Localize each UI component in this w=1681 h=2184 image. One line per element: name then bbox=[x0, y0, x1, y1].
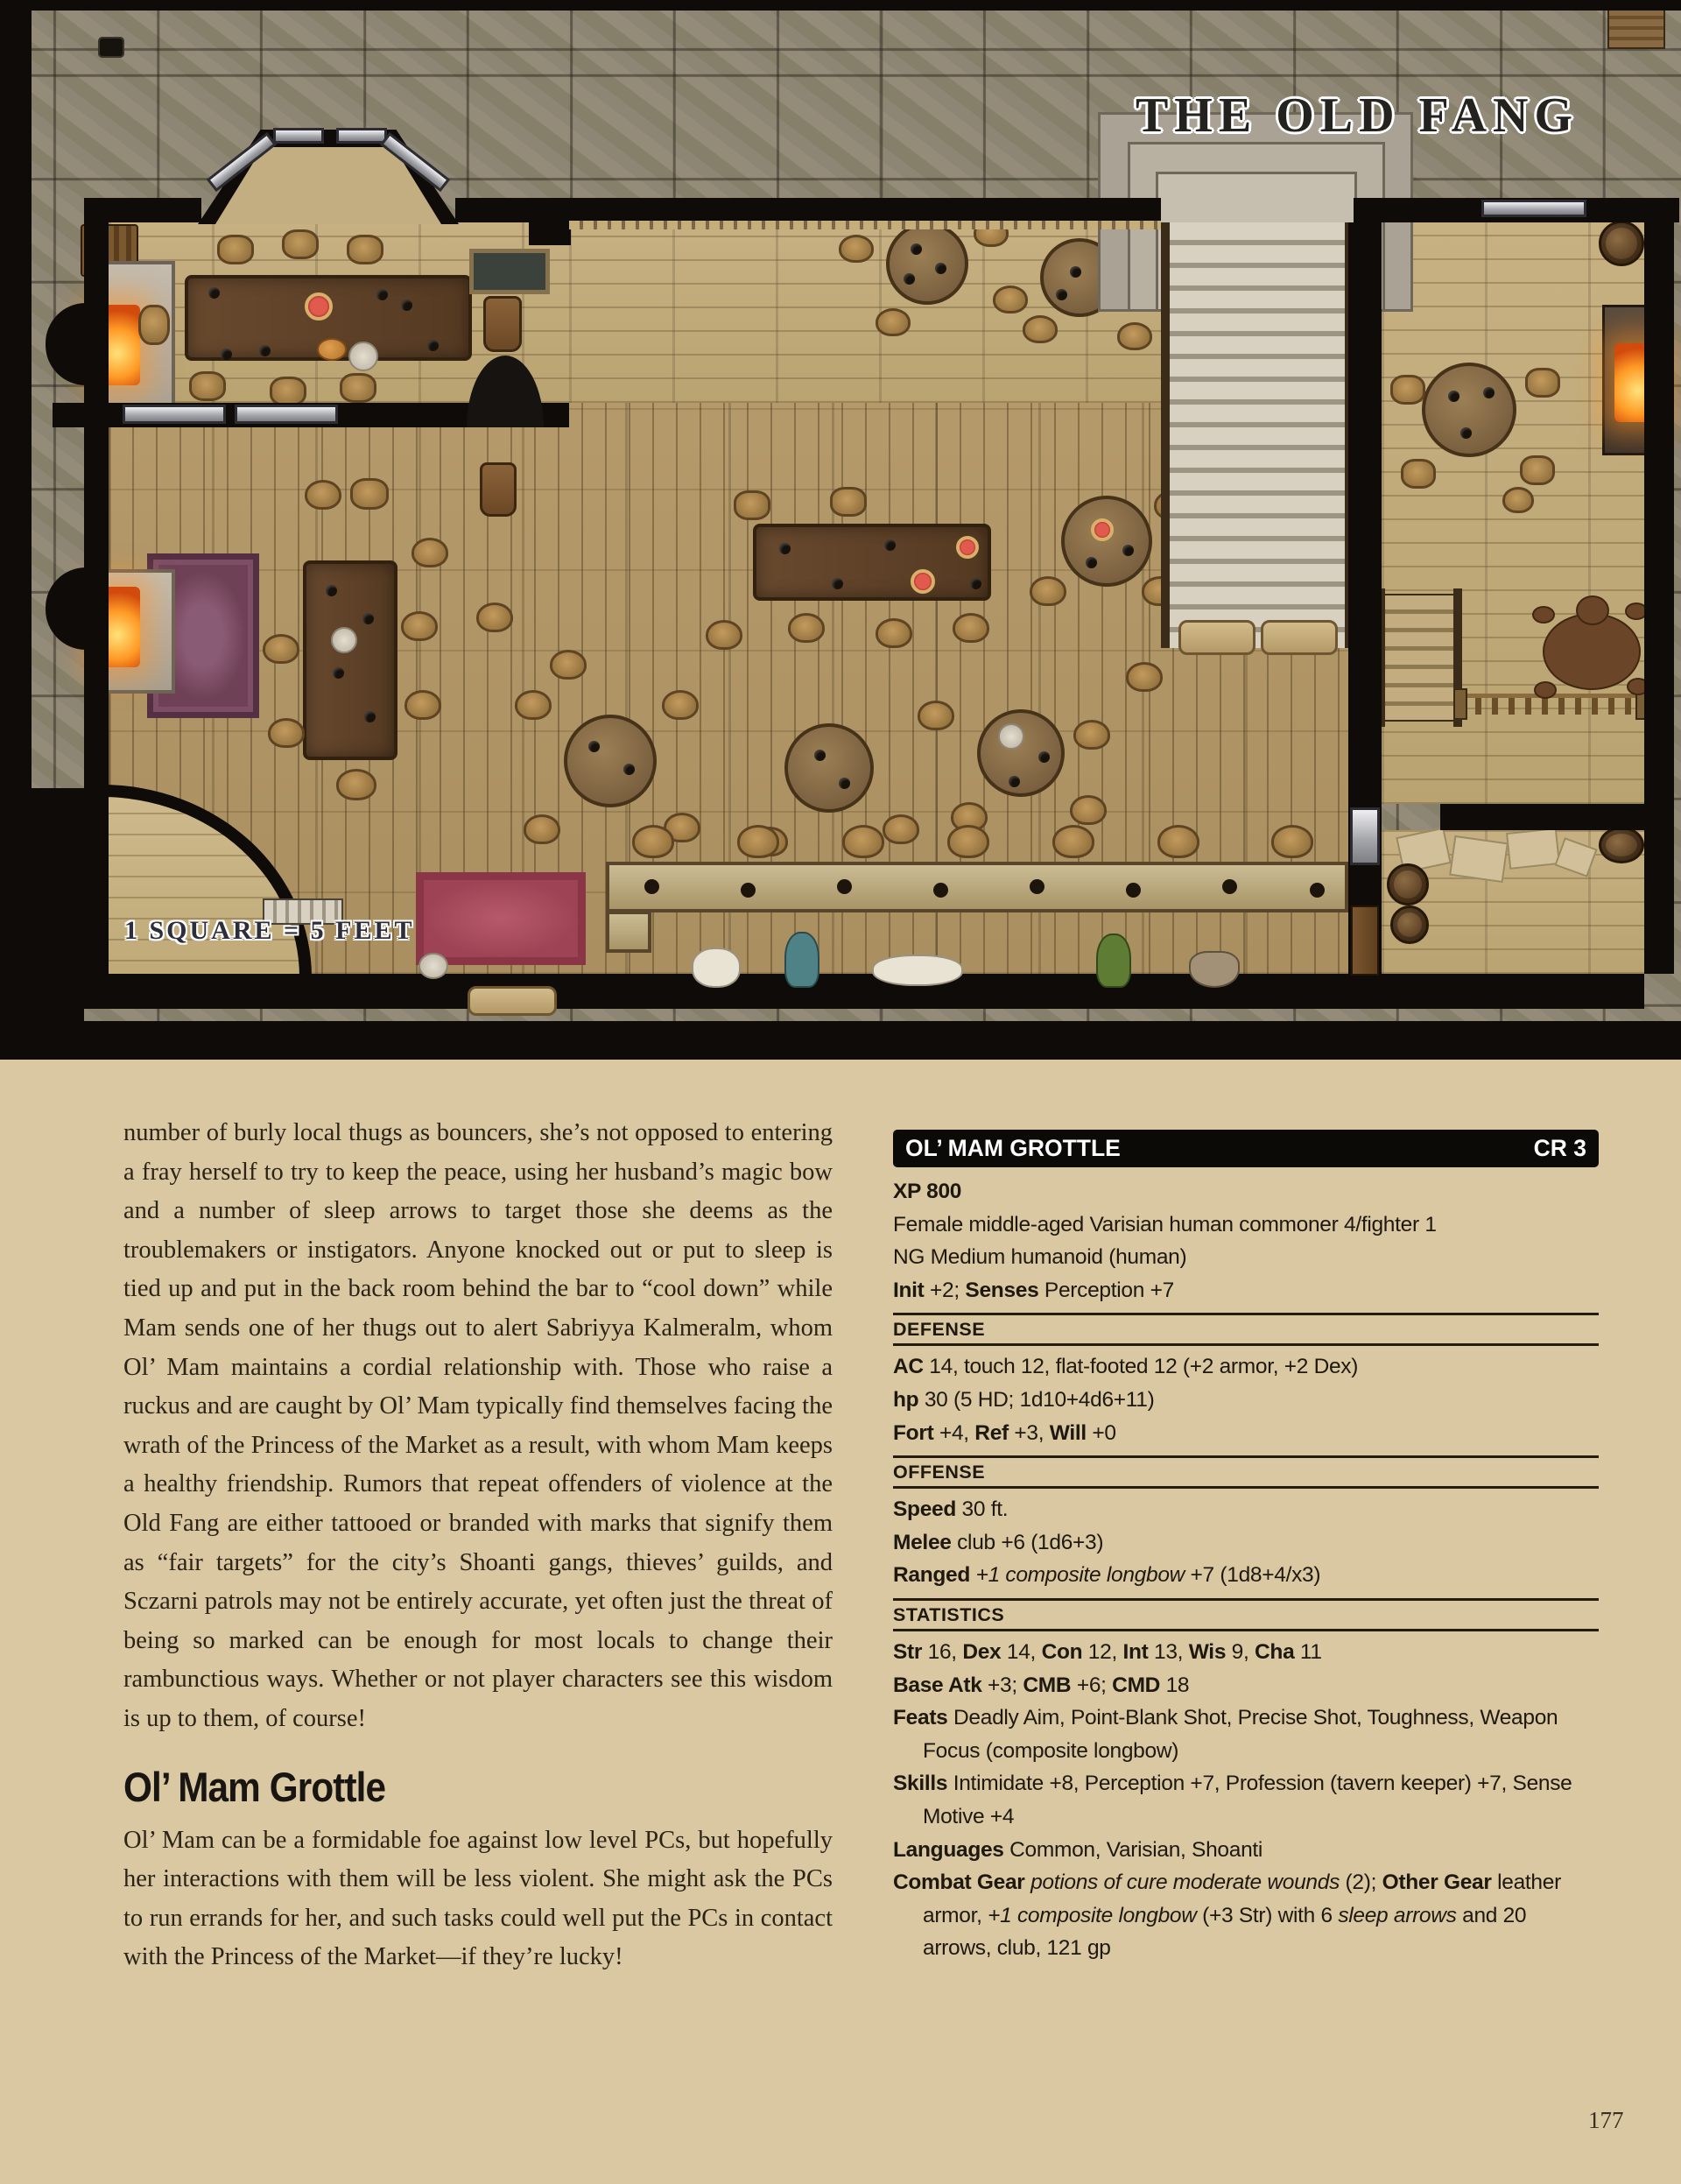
stat-line: Skills Intimidate +8, Perception +7, Pro… bbox=[893, 1767, 1599, 1833]
mug bbox=[208, 287, 220, 299]
bolt bbox=[1030, 879, 1044, 894]
paper-sack bbox=[1506, 828, 1560, 870]
chair bbox=[282, 229, 319, 259]
mug bbox=[1009, 776, 1020, 787]
stat-intro: XP 800Female middle-aged Varisian human … bbox=[893, 1175, 1599, 1307]
stool bbox=[706, 620, 742, 650]
chair bbox=[217, 235, 254, 264]
round-table bbox=[1422, 363, 1516, 457]
chair bbox=[189, 371, 226, 401]
dining-table bbox=[303, 560, 397, 760]
bear-paw bbox=[1532, 606, 1555, 623]
stat-line: Str 16, Dex 14, Con 12, Int 13, Wis 9, C… bbox=[893, 1636, 1599, 1669]
mug bbox=[623, 764, 635, 775]
stat-block-header: OL’ MAM GROTTLE CR 3 bbox=[893, 1130, 1599, 1167]
stat-block-name: OL’ MAM GROTTLE bbox=[905, 1135, 1121, 1162]
stool bbox=[788, 613, 825, 643]
door bbox=[1351, 905, 1379, 976]
stat-line: Base Atk +3; CMB +6; CMD 18 bbox=[893, 1669, 1599, 1702]
wall bbox=[84, 974, 1644, 1009]
chair bbox=[347, 235, 383, 264]
stat-line: Speed 30 ft. bbox=[893, 1493, 1599, 1526]
stool bbox=[918, 701, 954, 730]
barrel bbox=[1599, 221, 1644, 266]
mug bbox=[427, 340, 439, 351]
stool bbox=[1023, 315, 1058, 343]
map-frame bbox=[0, 0, 1681, 11]
chair bbox=[1525, 368, 1560, 398]
stool bbox=[336, 769, 376, 800]
stat-line: hp 30 (5 HD; 1d10+4d6+11) bbox=[893, 1384, 1599, 1417]
stool bbox=[883, 814, 919, 844]
bolt bbox=[1222, 879, 1237, 894]
chair bbox=[350, 478, 389, 510]
bench bbox=[1261, 620, 1338, 655]
chair bbox=[270, 377, 306, 406]
stool bbox=[550, 650, 587, 680]
staircase bbox=[1383, 594, 1455, 722]
window bbox=[1481, 200, 1586, 217]
wall bbox=[1440, 804, 1672, 830]
dining-table bbox=[753, 524, 991, 601]
stool bbox=[953, 613, 989, 643]
stool bbox=[515, 690, 552, 720]
armchair bbox=[483, 296, 522, 352]
bar-stool bbox=[1052, 825, 1094, 858]
bench bbox=[1178, 620, 1255, 655]
bar-stool bbox=[632, 825, 674, 858]
stool bbox=[263, 634, 299, 664]
bar-counter bbox=[606, 911, 651, 953]
fish-trophy bbox=[1096, 933, 1131, 988]
stat-block: OL’ MAM GROTTLE CR 3 XP 800Female middle… bbox=[893, 1130, 1599, 1965]
bolt bbox=[644, 879, 659, 894]
stool bbox=[876, 308, 911, 336]
chimney bbox=[46, 303, 86, 385]
bar-stool bbox=[947, 825, 989, 858]
stat-line: Init +2; Senses Perception +7 bbox=[893, 1274, 1599, 1307]
stool bbox=[1030, 576, 1066, 606]
chair bbox=[1401, 459, 1436, 489]
bar-stool bbox=[1271, 825, 1313, 858]
fish-trophy bbox=[784, 932, 819, 988]
round-table bbox=[886, 222, 968, 305]
drain-grate bbox=[98, 37, 124, 58]
plate bbox=[956, 536, 979, 559]
barrel bbox=[1387, 863, 1429, 905]
map-title: THE OLD FANG bbox=[1112, 89, 1602, 144]
mug bbox=[1038, 751, 1050, 763]
bar-stool bbox=[842, 825, 884, 858]
stat-section-header: OFFENSE bbox=[893, 1455, 1599, 1489]
barrel bbox=[1599, 827, 1644, 863]
stool bbox=[404, 690, 441, 720]
plate bbox=[331, 627, 357, 653]
stool bbox=[876, 618, 912, 648]
chair bbox=[1520, 455, 1555, 485]
menu-sign bbox=[469, 249, 550, 294]
chimney bbox=[46, 567, 86, 650]
stat-line: Female middle-aged Varisian human common… bbox=[893, 1208, 1599, 1242]
window bbox=[235, 405, 338, 424]
mug bbox=[1122, 545, 1134, 556]
mug bbox=[1086, 557, 1097, 568]
round-table bbox=[1061, 496, 1152, 587]
dentil-trim bbox=[569, 221, 1161, 229]
stool bbox=[839, 235, 874, 263]
stool bbox=[411, 538, 448, 567]
chair bbox=[734, 490, 770, 520]
stool bbox=[476, 602, 513, 632]
stool bbox=[1070, 795, 1107, 825]
bolt bbox=[837, 879, 852, 894]
stool bbox=[305, 480, 341, 510]
shelf bbox=[468, 986, 557, 1016]
bolt bbox=[1310, 883, 1325, 898]
mug bbox=[970, 578, 981, 589]
chair bbox=[340, 373, 376, 403]
bolt bbox=[1126, 883, 1141, 898]
mug bbox=[1483, 387, 1495, 398]
mug bbox=[376, 289, 388, 300]
window bbox=[1350, 807, 1380, 865]
bar-stool bbox=[737, 825, 779, 858]
stat-block-cr: CR 3 bbox=[1534, 1135, 1586, 1162]
stat-line: Languages Common, Varisian, Shoanti bbox=[893, 1834, 1599, 1867]
window bbox=[336, 128, 387, 144]
stool bbox=[524, 814, 560, 844]
paper-sack bbox=[1449, 835, 1509, 883]
wall bbox=[84, 198, 109, 1000]
plate bbox=[1091, 518, 1114, 541]
mug bbox=[401, 299, 412, 311]
stool bbox=[1126, 662, 1163, 692]
mug bbox=[362, 613, 374, 624]
map-frame bbox=[0, 1021, 1681, 1060]
bar-stool bbox=[1157, 825, 1199, 858]
stool bbox=[662, 690, 699, 720]
body-paragraph: Ol’ Mam can be a formidable foe against … bbox=[123, 1821, 833, 1977]
mug bbox=[779, 543, 791, 554]
stat-line: Feats Deadly Aim, Point-Blank Shot, Prec… bbox=[893, 1701, 1599, 1767]
mug bbox=[588, 741, 600, 752]
chair bbox=[830, 487, 867, 517]
stat-line: XP 800 bbox=[893, 1175, 1599, 1208]
stool bbox=[1117, 322, 1152, 350]
bolt bbox=[933, 883, 948, 898]
staircase bbox=[1164, 222, 1350, 648]
plate bbox=[348, 342, 378, 371]
stat-line: Melee club +6 (1d6+3) bbox=[893, 1526, 1599, 1560]
section-heading: Ol’ Mam Grottle bbox=[123, 1763, 762, 1811]
round-table bbox=[784, 723, 874, 813]
bolt bbox=[741, 883, 756, 898]
window bbox=[273, 128, 324, 144]
stat-line: Fort +4, Ref +3, Will +0 bbox=[893, 1417, 1599, 1450]
wall-post bbox=[529, 198, 571, 245]
armchair bbox=[480, 462, 517, 517]
map-scale-label: 1 SQUARE = 5 FEET bbox=[124, 918, 414, 944]
herb-plate bbox=[418, 953, 448, 979]
mug bbox=[1448, 391, 1459, 402]
red-rug bbox=[416, 872, 586, 965]
map-frame bbox=[0, 788, 84, 1060]
mug bbox=[935, 263, 946, 274]
stat-sections: DEFENSEAC 14, touch 12, flat-footed 12 (… bbox=[893, 1313, 1599, 1965]
newel-post bbox=[1453, 688, 1467, 720]
wall bbox=[1644, 222, 1674, 974]
stool bbox=[1502, 487, 1534, 513]
mug bbox=[1070, 266, 1081, 278]
mug bbox=[832, 578, 843, 589]
mug bbox=[904, 273, 915, 285]
mug bbox=[911, 243, 922, 255]
wall bbox=[569, 198, 1161, 222]
mug bbox=[1460, 427, 1472, 439]
rail-side bbox=[1161, 222, 1170, 648]
mug bbox=[1056, 289, 1067, 300]
left-column: number of burly local thugs as bouncers,… bbox=[123, 1114, 833, 1977]
mug bbox=[839, 778, 850, 789]
plate bbox=[305, 292, 333, 321]
stat-line: AC 14, touch 12, flat-footed 12 (+2 armo… bbox=[893, 1350, 1599, 1384]
mug bbox=[884, 539, 896, 551]
stool bbox=[993, 285, 1028, 314]
bread-loaf bbox=[317, 338, 347, 361]
round-table bbox=[564, 715, 657, 807]
stool bbox=[268, 718, 305, 748]
bear-paw bbox=[1534, 681, 1557, 699]
mug bbox=[259, 345, 271, 356]
stool bbox=[401, 611, 438, 641]
stat-line: NG Medium humanoid (human) bbox=[893, 1241, 1599, 1274]
chair bbox=[138, 305, 170, 345]
stat-line: Ranged +1 composite longbow +7 (1d8+4/x3… bbox=[893, 1559, 1599, 1592]
stool bbox=[1073, 720, 1110, 750]
mug bbox=[364, 711, 376, 722]
mug bbox=[326, 585, 337, 596]
stat-section-header: STATISTICS bbox=[893, 1598, 1599, 1631]
wall bbox=[1348, 222, 1382, 998]
mug bbox=[221, 349, 232, 360]
mug bbox=[814, 750, 826, 761]
shark-jaw bbox=[872, 955, 963, 986]
plate bbox=[911, 569, 935, 594]
skull-trophy bbox=[692, 948, 741, 988]
stat-section-header: DEFENSE bbox=[893, 1313, 1599, 1346]
tavern-map: THE OLD FANG 1 SQUARE = 5 FEET bbox=[0, 0, 1681, 1060]
bull-skull bbox=[1189, 951, 1240, 988]
wood-pallet bbox=[1607, 9, 1665, 49]
bear-head bbox=[1576, 595, 1609, 625]
plate bbox=[998, 723, 1024, 750]
page-number: 177 bbox=[1588, 2107, 1624, 2134]
mug bbox=[333, 667, 344, 679]
body-paragraph: number of burly local thugs as bouncers,… bbox=[123, 1114, 833, 1739]
barrel bbox=[1390, 905, 1429, 944]
chair bbox=[1390, 375, 1425, 405]
book-page: THE OLD FANG 1 SQUARE = 5 FEET number of… bbox=[0, 0, 1681, 2184]
stat-line: Combat Gear potions of cure moderate wou… bbox=[893, 1866, 1599, 1965]
window bbox=[123, 405, 226, 424]
round-table bbox=[977, 709, 1065, 797]
